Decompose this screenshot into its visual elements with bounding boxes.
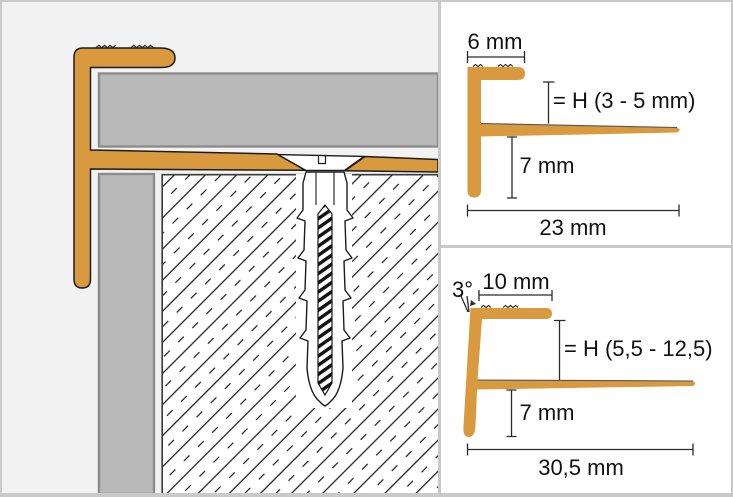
dimension-top-width: 6 mm <box>468 29 525 63</box>
riser-tile <box>99 174 154 493</box>
dimension-total-width: 23 mm <box>468 205 680 241</box>
total-width-label: 23 mm <box>539 215 606 240</box>
top-width-label: 6 mm <box>468 29 523 54</box>
total-width-label: 30,5 mm <box>538 455 624 480</box>
angle-label: 3° <box>452 277 473 302</box>
dimension-tile-height: = H (3 - 5 mm) <box>543 82 695 124</box>
leg-height-label: 7 mm <box>520 400 575 425</box>
knurled-surface <box>473 65 513 67</box>
dimension-angle: 3° <box>452 277 476 312</box>
tile-height-label: = H (3 - 5 mm) <box>553 88 695 113</box>
tread-tile <box>99 74 438 147</box>
installation-cross-section-drawing <box>2 2 438 493</box>
installation-cross-section-panel <box>2 2 438 493</box>
leg-height-label: 7 mm <box>520 153 575 178</box>
top-width-label: 10 mm <box>482 269 549 294</box>
knurled-surface <box>481 306 518 308</box>
profile-diagram-large-panel: 3° 10 mm = H (5,5 - 12,5) 7 mm 30,5 mm <box>441 248 731 493</box>
dimension-total-width: 30,5 mm <box>468 444 694 481</box>
dimension-leg-height: 7 mm <box>507 390 575 437</box>
dimension-tile-height: = H (5,5 - 12,5) <box>554 321 713 381</box>
tile-height-label: = H (5,5 - 12,5) <box>564 336 713 361</box>
knurled-surface <box>96 45 153 47</box>
dimension-leg-height: 7 mm <box>507 137 575 198</box>
profile-shape-large <box>463 306 695 438</box>
anchor-screw-thread <box>318 205 332 395</box>
profile-diagram-small: 6 mm = H (3 - 5 mm) 7 mm 23 mm <box>441 2 731 245</box>
dimension-top-width: 10 mm <box>479 269 552 301</box>
dimension-diagrams-column: 6 mm = H (3 - 5 mm) 7 mm 23 mm <box>438 2 731 493</box>
profile-diagram-small-panel: 6 mm = H (3 - 5 mm) 7 mm 23 mm <box>441 2 731 248</box>
drawing-frame: 6 mm = H (3 - 5 mm) 7 mm 23 mm <box>0 0 733 497</box>
profile-diagram-large: 3° 10 mm = H (5,5 - 12,5) 7 mm 30,5 mm <box>441 248 731 493</box>
